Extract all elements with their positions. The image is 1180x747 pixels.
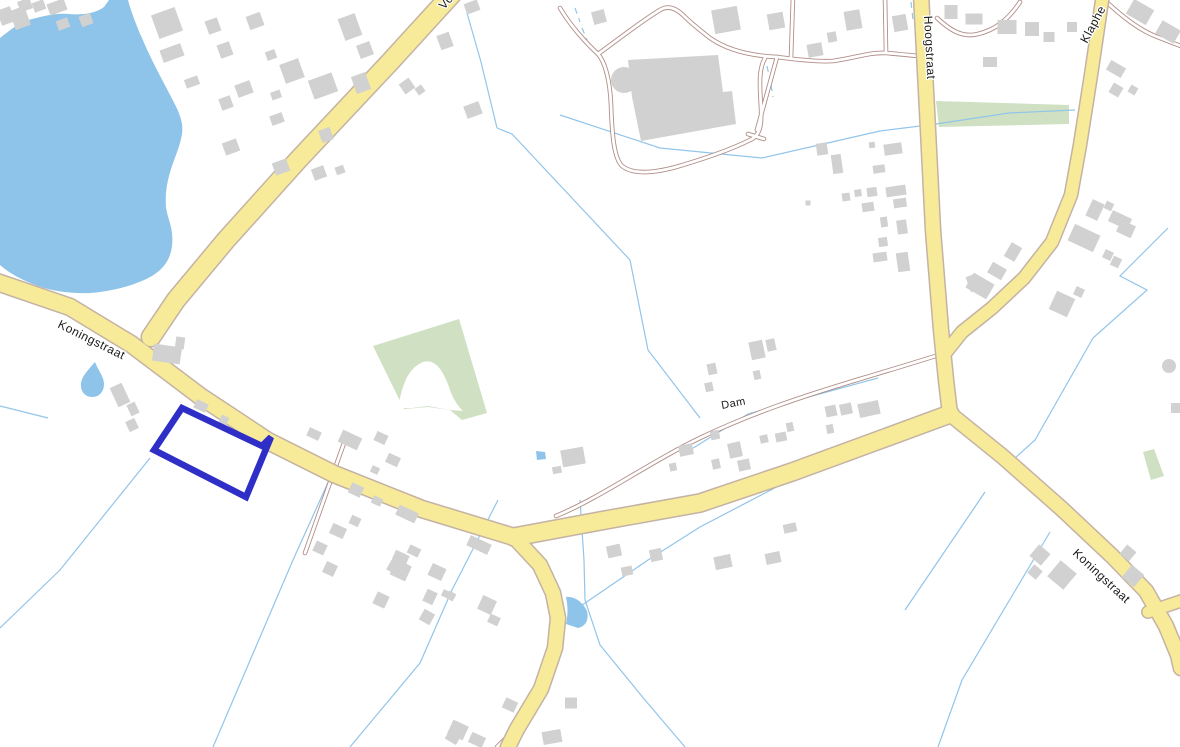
major-road[interactable] bbox=[151, 0, 452, 337]
parcel-boundary-line bbox=[350, 500, 498, 747]
building bbox=[831, 154, 844, 174]
building bbox=[753, 370, 762, 380]
building bbox=[816, 142, 829, 155]
building bbox=[713, 554, 732, 570]
building bbox=[216, 41, 233, 59]
parcel-boundary-line bbox=[0, 458, 150, 628]
major-road[interactable] bbox=[946, 0, 1103, 352]
parcel-boundary-line bbox=[497, 128, 630, 260]
building bbox=[1004, 242, 1022, 262]
building bbox=[349, 515, 362, 527]
building bbox=[373, 431, 388, 445]
parcel-boundary-line bbox=[771, 85, 773, 97]
building bbox=[125, 418, 139, 432]
major-road[interactable] bbox=[514, 414, 950, 537]
building bbox=[806, 201, 811, 206]
parcel-boundary-line bbox=[1093, 228, 1168, 338]
building bbox=[873, 164, 886, 174]
building bbox=[861, 202, 874, 213]
building bbox=[1128, 85, 1139, 96]
building bbox=[710, 430, 721, 441]
building bbox=[878, 237, 888, 247]
building bbox=[386, 556, 412, 579]
building bbox=[422, 589, 437, 605]
building bbox=[737, 458, 751, 471]
building bbox=[621, 565, 634, 576]
building bbox=[727, 441, 743, 458]
building bbox=[419, 609, 435, 625]
building bbox=[265, 49, 277, 61]
building bbox=[1085, 199, 1104, 221]
parcel-boundary-line bbox=[905, 492, 985, 610]
pond bbox=[536, 451, 546, 460]
building bbox=[372, 591, 389, 608]
minor-road-casing bbox=[598, 8, 777, 57]
building bbox=[1155, 20, 1180, 43]
building bbox=[885, 185, 906, 198]
parcel-boundary-line bbox=[575, 8, 580, 22]
building bbox=[866, 187, 877, 197]
pond bbox=[81, 362, 104, 397]
building bbox=[987, 262, 1007, 280]
map-viewport[interactable]: VoKoningstraatHoogstraatKlapheDamKonings… bbox=[0, 0, 1180, 747]
building bbox=[184, 75, 200, 88]
building bbox=[246, 12, 265, 30]
parcel-boundary-line bbox=[580, 500, 685, 747]
building bbox=[1171, 403, 1180, 413]
building bbox=[385, 453, 401, 468]
building bbox=[175, 336, 186, 349]
building bbox=[1108, 82, 1123, 97]
building bbox=[356, 41, 374, 59]
building bbox=[606, 544, 622, 559]
building bbox=[234, 80, 253, 98]
building bbox=[783, 522, 798, 534]
building bbox=[218, 95, 233, 110]
building bbox=[711, 6, 741, 34]
building bbox=[786, 422, 795, 432]
building bbox=[110, 383, 131, 408]
building bbox=[151, 7, 183, 39]
building bbox=[1044, 32, 1055, 42]
building bbox=[565, 698, 577, 709]
building bbox=[159, 43, 184, 63]
building bbox=[827, 31, 838, 42]
building bbox=[966, 14, 983, 25]
building bbox=[463, 101, 482, 119]
building bbox=[824, 404, 837, 417]
building bbox=[204, 17, 221, 35]
building bbox=[765, 551, 782, 565]
building bbox=[883, 142, 902, 155]
building bbox=[126, 402, 139, 417]
building bbox=[308, 72, 338, 99]
building bbox=[1102, 249, 1114, 261]
building bbox=[407, 544, 422, 557]
building bbox=[329, 523, 347, 539]
building bbox=[370, 465, 380, 475]
building bbox=[711, 458, 721, 469]
building bbox=[896, 219, 908, 234]
lake bbox=[0, 0, 182, 293]
building bbox=[706, 363, 717, 376]
building bbox=[806, 42, 823, 57]
parcel-boundary-line bbox=[911, 2, 913, 20]
building bbox=[468, 732, 486, 747]
parcel-boundary-line bbox=[938, 532, 1050, 747]
building bbox=[311, 165, 327, 181]
building bbox=[826, 424, 835, 434]
building bbox=[843, 9, 862, 30]
pond bbox=[566, 597, 588, 628]
building bbox=[1025, 22, 1039, 36]
building bbox=[32, 0, 47, 13]
parcel-boundary-line bbox=[0, 406, 48, 418]
building bbox=[869, 142, 876, 149]
building bbox=[854, 189, 862, 197]
building bbox=[338, 13, 363, 41]
building bbox=[872, 252, 887, 263]
building bbox=[312, 540, 328, 555]
building bbox=[857, 400, 880, 418]
large-building bbox=[628, 55, 736, 141]
building bbox=[427, 563, 446, 581]
building bbox=[896, 252, 911, 272]
building bbox=[775, 431, 788, 442]
building bbox=[880, 217, 888, 228]
building bbox=[678, 443, 694, 457]
building bbox=[436, 32, 453, 51]
building bbox=[477, 595, 497, 615]
building bbox=[552, 466, 562, 474]
building bbox=[334, 165, 345, 176]
building bbox=[841, 192, 850, 201]
building bbox=[222, 138, 241, 155]
building bbox=[542, 729, 563, 745]
building bbox=[1068, 224, 1101, 252]
round-building bbox=[1162, 359, 1176, 373]
building bbox=[767, 12, 786, 31]
building bbox=[1067, 22, 1077, 32]
building bbox=[502, 697, 518, 712]
building bbox=[279, 58, 305, 84]
building bbox=[46, 0, 67, 16]
building bbox=[998, 20, 1017, 34]
green-area bbox=[1143, 449, 1164, 480]
map-canvas[interactable]: VoKoningstraatHoogstraatKlapheDamKonings… bbox=[0, 0, 1180, 747]
building bbox=[765, 338, 776, 352]
building bbox=[649, 548, 663, 562]
building bbox=[322, 561, 338, 577]
building bbox=[1047, 560, 1077, 590]
building bbox=[892, 14, 909, 32]
building bbox=[983, 57, 997, 67]
major-road[interactable] bbox=[0, 281, 514, 537]
building bbox=[270, 90, 282, 101]
building bbox=[269, 112, 285, 126]
building bbox=[306, 427, 322, 441]
building bbox=[414, 84, 425, 95]
building bbox=[893, 198, 907, 209]
building bbox=[1049, 291, 1076, 318]
minor-road[interactable] bbox=[885, 0, 886, 52]
road-label: Dam bbox=[720, 395, 747, 411]
building bbox=[759, 434, 768, 443]
building bbox=[945, 5, 958, 19]
building bbox=[591, 9, 607, 25]
building bbox=[748, 340, 765, 361]
building bbox=[1073, 286, 1085, 298]
building bbox=[1106, 60, 1126, 78]
building bbox=[1104, 201, 1115, 212]
building bbox=[487, 614, 501, 627]
building bbox=[669, 462, 678, 471]
parcel-boundary-line bbox=[1004, 338, 1093, 468]
building bbox=[560, 447, 586, 468]
parcel-boundary-line bbox=[630, 260, 700, 418]
building bbox=[399, 78, 416, 95]
building-tower bbox=[611, 67, 637, 93]
building bbox=[839, 402, 853, 415]
building bbox=[464, 0, 481, 15]
building bbox=[704, 382, 714, 392]
